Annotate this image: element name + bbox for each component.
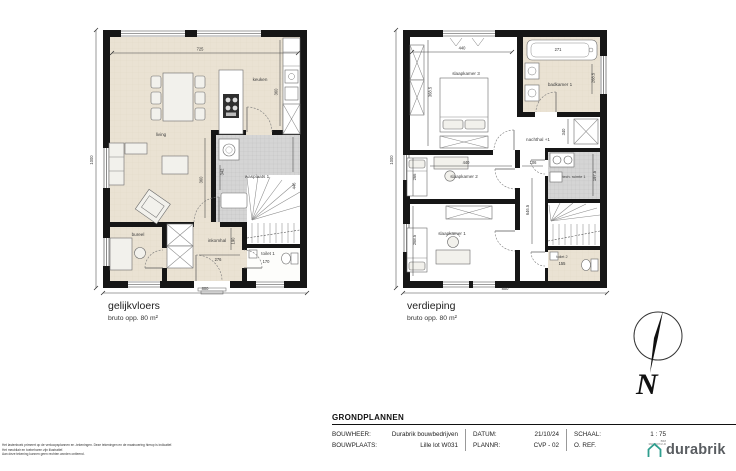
dim-271: 271 <box>555 47 563 52</box>
upper-plan-title: verdieping <box>407 300 456 312</box>
datum-label: DATUM: <box>473 429 497 440</box>
dim-446: 446 <box>292 182 297 190</box>
dim-190: 190 <box>231 237 236 245</box>
dim-725: 725 <box>197 47 205 52</box>
coffee-table <box>162 156 188 174</box>
label-slaapkamer2: slaapkamer 2 <box>450 174 478 179</box>
plannr-label: PLANNR: <box>473 440 500 451</box>
dining-table <box>151 73 205 121</box>
label-nachthal: nachthal +1 <box>526 137 550 142</box>
bed-single <box>407 228 427 272</box>
dim-268-5-sk1: 268.5 <box>412 234 417 245</box>
dim-276: 276 <box>215 257 223 262</box>
kitchen-counter <box>283 38 300 134</box>
label-toilet1: toilet 1 <box>261 251 275 256</box>
logo-text: durabrik <box>666 442 726 458</box>
dim-155: 155 <box>559 261 567 266</box>
dim-106: 106 <box>530 160 538 165</box>
label-keuken: keuken <box>253 77 268 82</box>
durabrik-logo: durabrik <box>646 441 726 459</box>
dim-268-5-bad: 268.5 <box>591 72 596 83</box>
schaal-label: SCHAAL: <box>574 429 601 440</box>
dim-368-5: 368.5 <box>428 86 433 97</box>
floor-plan-upper: 440 368.5 271 268.5 340 266 440 106 646.… <box>389 28 609 322</box>
label-badkamer1: badkamer 1 <box>548 82 573 87</box>
label-tech-ruimte: tech. ruimte 1 <box>562 175 585 179</box>
north-arrow: N <box>634 311 682 401</box>
dim-340: 340 <box>561 128 566 136</box>
label-inkomhal: inkomhal <box>208 238 226 243</box>
ground-plan-title: gelijkvloers <box>108 300 160 312</box>
durabrik-house-icon <box>646 441 663 459</box>
bed-double <box>440 78 488 148</box>
kitchen-island <box>219 70 243 134</box>
oref-label: O. REF. <box>574 440 596 451</box>
bouwheer-value: Durabrik bouwbedrijven <box>392 429 458 440</box>
label-slaapkamer3: slaapkamer 3 <box>452 71 480 76</box>
label-bureel: bureel <box>132 232 145 237</box>
north-needle <box>650 311 663 373</box>
bouwplaats-value: Lille lot W031 <box>420 440 458 451</box>
ground-plan-subtitle: bruto opp. 80 m² <box>108 315 159 322</box>
drawing-title: GRONDPLANNEN <box>332 413 736 422</box>
label-slaapkamer1: slaapkamer 1 <box>438 231 466 236</box>
dim-800-upper: 800 <box>502 286 510 291</box>
bed-single <box>407 158 427 196</box>
front-door-opening <box>194 281 230 288</box>
dim-342: 342 <box>220 168 225 176</box>
dim-360-keuken: 360 <box>274 88 279 96</box>
datum-value: 21/10/24 <box>534 429 559 440</box>
label-wasplaats: wasplaats 1 <box>245 174 270 179</box>
label-living: living <box>156 132 167 137</box>
closet <box>574 119 598 144</box>
wardrobe <box>446 206 492 219</box>
disclaimer-text: Het lastenboek primeert op de verkoopspl… <box>2 443 232 457</box>
dim-1000: 1000 <box>89 155 94 165</box>
wardrobe <box>410 45 424 115</box>
dim-266: 266 <box>412 173 417 181</box>
dim-360-living: 360 <box>199 176 204 184</box>
plans-drawing: 725 360 360 342 446 276 190 170 800 1000… <box>0 0 736 410</box>
bouwheer-label: BOUWHEER: <box>332 429 371 440</box>
dim-170: 170 <box>263 259 271 264</box>
upper-plan-subtitle: bruto opp. 80 m² <box>407 315 458 322</box>
dim-440-sk3: 440 <box>459 46 467 51</box>
dim-646-5: 646.5 <box>525 204 530 215</box>
north-label: N <box>635 368 659 401</box>
dim-440-sk2: 440 <box>463 160 471 165</box>
bouwplaats-label: BOUWPLAATS: <box>332 440 377 451</box>
dim-800: 800 <box>202 286 210 291</box>
washing-machine <box>219 139 239 160</box>
dim-1000-upper: 1000 <box>389 155 394 165</box>
closet <box>167 224 193 268</box>
label-toilet2: toilet 2 <box>556 255 567 259</box>
title-rule <box>332 424 736 425</box>
dim-197-5: 197.5 <box>592 170 597 181</box>
floor-plan-ground: 725 360 360 342 446 276 190 170 800 1000… <box>89 28 309 322</box>
floor-plan-sheet: 725 360 360 342 446 276 190 170 800 1000… <box>0 0 736 471</box>
plannr-value: CVP - 02 <box>534 440 559 451</box>
utility-sink <box>221 193 247 208</box>
bathtub <box>527 40 597 60</box>
